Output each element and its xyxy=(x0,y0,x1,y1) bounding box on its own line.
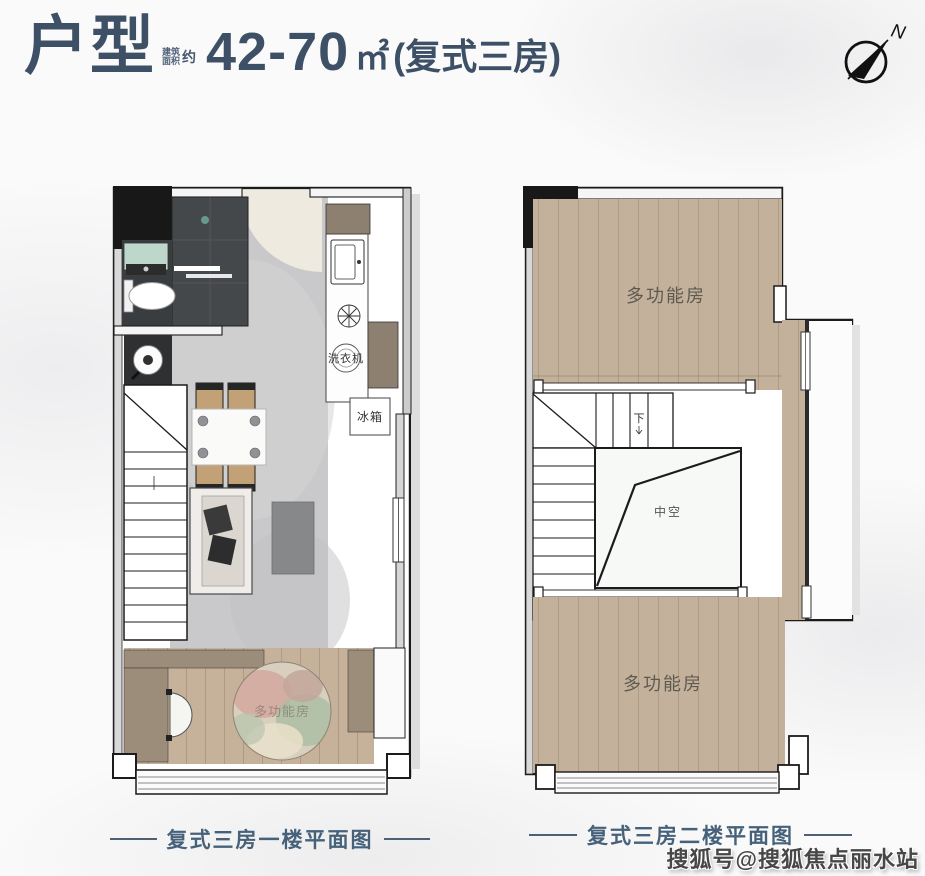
caption-dash xyxy=(384,838,431,840)
dining-set xyxy=(192,383,266,491)
balcony-window-bottom xyxy=(802,586,811,618)
staircase xyxy=(124,385,187,640)
void-label: 中空 xyxy=(654,504,682,519)
wall-nib xyxy=(774,286,786,322)
balcony-window-top xyxy=(801,332,810,390)
first-floor-caption: 复式三房一楼平面图 xyxy=(110,824,430,854)
unit-type-title: 户型 xyxy=(24,16,156,77)
multi-room-upper: 多功能房 xyxy=(533,199,786,390)
top-wall-left xyxy=(166,188,242,197)
page-title: 户型 建筑 面积 约 42-70 ㎡ (复式三房) xyxy=(24,16,561,77)
compass-north-label: N xyxy=(889,20,908,44)
washer-area xyxy=(124,335,172,385)
coffee-table xyxy=(272,502,314,574)
area-value: 42-70 xyxy=(206,28,349,77)
side-window xyxy=(393,498,404,562)
multi-room-label-lower: 多功能房 xyxy=(623,674,703,694)
top-wall-right xyxy=(310,188,410,197)
caption-dash xyxy=(529,834,577,836)
caption-dash xyxy=(110,838,157,840)
sofa xyxy=(190,488,252,594)
washing-machine-label: 洗衣机 xyxy=(328,351,364,365)
fridge-label: 冰箱 xyxy=(357,409,383,424)
area-meta: 建筑 面积 约 xyxy=(162,47,196,67)
multi-room-first-floor: 多功能房 xyxy=(124,648,405,764)
watermark: 搜狐号@搜狐焦点丽水站 xyxy=(667,842,919,874)
fridge: 冰箱 xyxy=(350,398,390,435)
void-space: 中空 xyxy=(595,448,741,588)
multi-room-label-upper: 多功能房 xyxy=(626,286,706,306)
multi-room-lower: 多功能房 xyxy=(533,597,785,773)
toilet xyxy=(129,283,175,310)
area-suffix: (复式三房) xyxy=(393,39,561,75)
multi-room-label-floor1: 多功能房 xyxy=(254,704,310,719)
area-unit: ㎡ xyxy=(355,41,389,75)
shower-head xyxy=(201,216,209,224)
caption-dash xyxy=(804,834,852,836)
plan1-right-shadow xyxy=(411,194,420,769)
plan2-left-wall xyxy=(526,188,533,774)
area-approx: 约 xyxy=(182,47,196,67)
floorplan-page: 户型 建筑 面积 约 42-70 ㎡ (复式三房) N xyxy=(0,0,925,876)
first-floor-caption-text: 复式三房一楼平面图 xyxy=(167,824,374,854)
corner-shaft-block xyxy=(113,186,172,249)
shower-glass xyxy=(174,266,220,271)
area-label-line2: 面积 xyxy=(162,57,180,66)
second-floor-plan: 多功能房 下 xyxy=(518,180,863,830)
kitchen-sink xyxy=(331,240,364,284)
plan1-left-wall xyxy=(114,188,122,776)
upper-cabinet xyxy=(326,204,370,234)
stove-icon xyxy=(338,305,360,327)
first-floor-plan: 洗衣机 冰箱 xyxy=(110,180,430,830)
plan2-right-shadow xyxy=(852,325,860,615)
stairs-upper-run: 下 xyxy=(533,393,673,448)
compass-icon: N xyxy=(834,16,910,92)
down-label: 下 xyxy=(634,413,645,425)
side-cabinet xyxy=(368,322,398,388)
right-balcony xyxy=(782,320,852,620)
